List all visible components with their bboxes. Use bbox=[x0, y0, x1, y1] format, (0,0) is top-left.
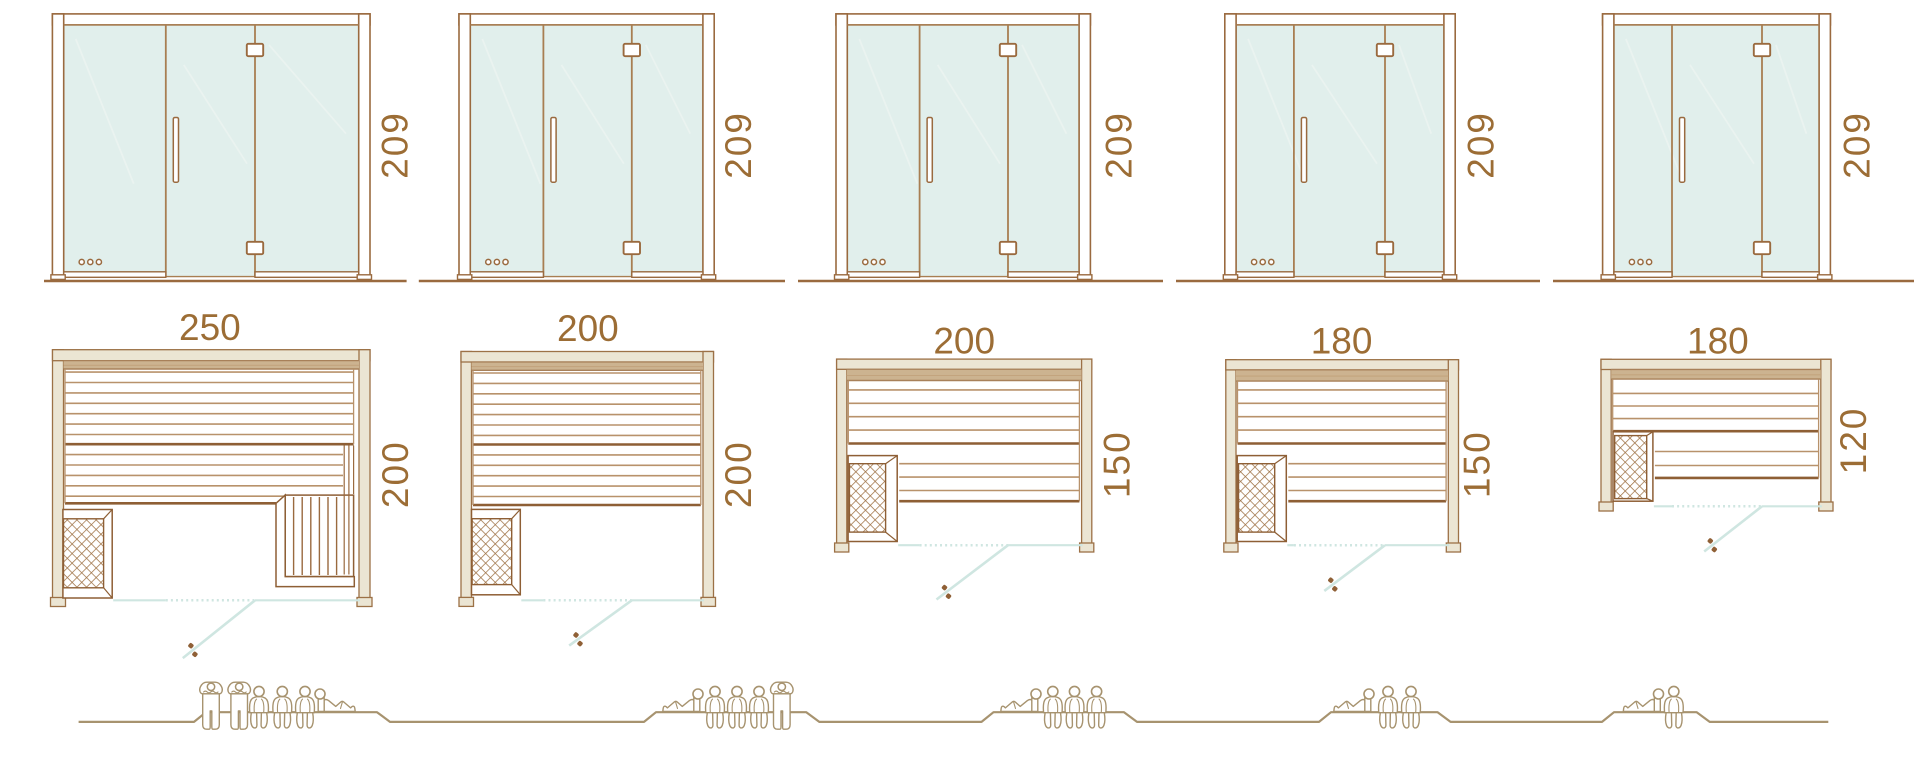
svg-text:209: 209 bbox=[1460, 111, 1501, 179]
svg-text:120: 120 bbox=[1833, 407, 1874, 475]
svg-text:180: 180 bbox=[1311, 321, 1373, 362]
svg-text:200: 200 bbox=[557, 308, 619, 349]
svg-text:200: 200 bbox=[933, 321, 995, 362]
svg-text:180: 180 bbox=[1687, 321, 1749, 362]
svg-text:200: 200 bbox=[718, 440, 759, 508]
svg-text:150: 150 bbox=[1457, 430, 1498, 498]
svg-text:209: 209 bbox=[1837, 111, 1878, 179]
svg-text:250: 250 bbox=[179, 307, 241, 348]
svg-text:209: 209 bbox=[718, 111, 759, 179]
svg-text:209: 209 bbox=[1098, 111, 1139, 179]
svg-text:150: 150 bbox=[1097, 430, 1138, 498]
svg-text:200: 200 bbox=[375, 440, 416, 508]
svg-text:209: 209 bbox=[375, 111, 416, 179]
